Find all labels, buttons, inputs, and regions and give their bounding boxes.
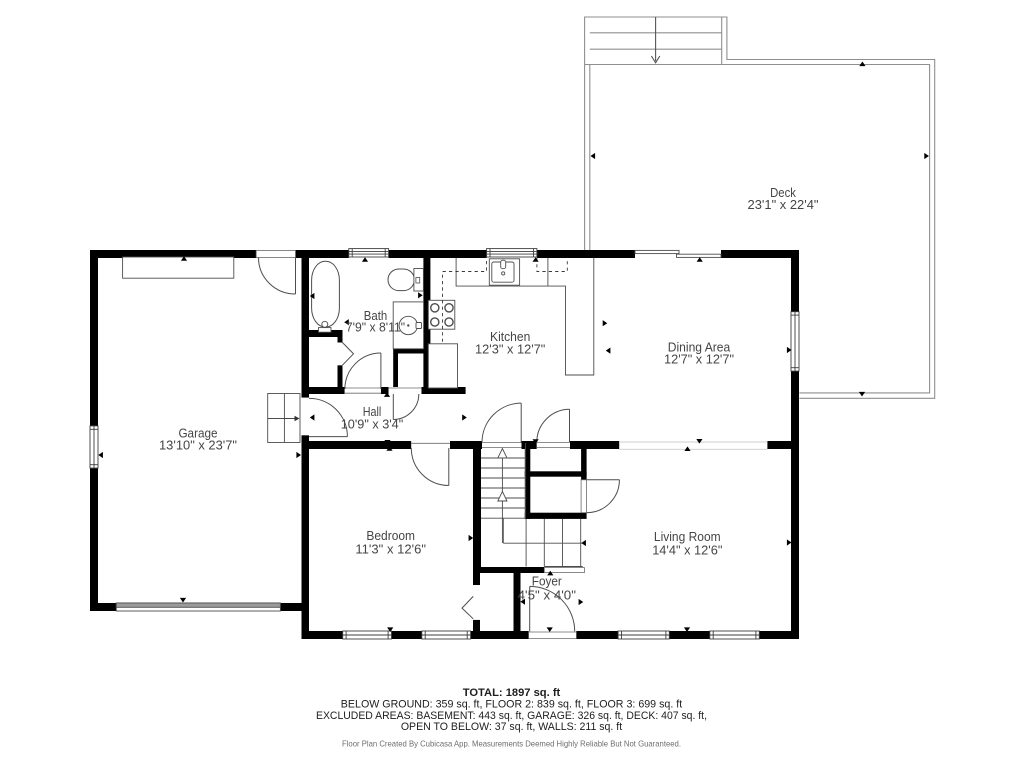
svg-text:11'3" x 12'6": 11'3" x 12'6" [355, 541, 426, 556]
svg-text:14'4" x 12'6": 14'4" x 12'6" [652, 542, 723, 557]
svg-text:13'10" x 23'7": 13'10" x 23'7" [159, 438, 237, 453]
svg-text:OPEN TO BELOW: 37 sq. ft, WALL: OPEN TO BELOW: 37 sq. ft, WALLS: 211 sq.… [401, 721, 622, 733]
svg-text:7'9" x 8'11": 7'9" x 8'11" [346, 320, 406, 335]
svg-text:12'7" x 12'7": 12'7" x 12'7" [664, 352, 734, 367]
svg-text:23'1" x 22'4": 23'1" x 22'4" [748, 197, 819, 212]
svg-text:12'3" x 12'7": 12'3" x 12'7" [475, 341, 546, 356]
svg-text:TOTAL: 1897 sq. ft: TOTAL: 1897 sq. ft [463, 687, 561, 699]
svg-text:EXCLUDED AREAS: BASEMENT: 443: EXCLUDED AREAS: BASEMENT: 443 sq. ft, GA… [316, 710, 707, 722]
svg-text:Floor Plan Created By Cubicasa: Floor Plan Created By Cubicasa App. Meas… [342, 738, 681, 748]
svg-text:BELOW GROUND: 359 sq. ft, FLOO: BELOW GROUND: 359 sq. ft, FLOOR 2: 839 s… [341, 699, 682, 711]
svg-text:4'5" x 4'0": 4'5" x 4'0" [518, 587, 577, 602]
svg-text:10'9" x 3'4": 10'9" x 3'4" [341, 417, 404, 432]
